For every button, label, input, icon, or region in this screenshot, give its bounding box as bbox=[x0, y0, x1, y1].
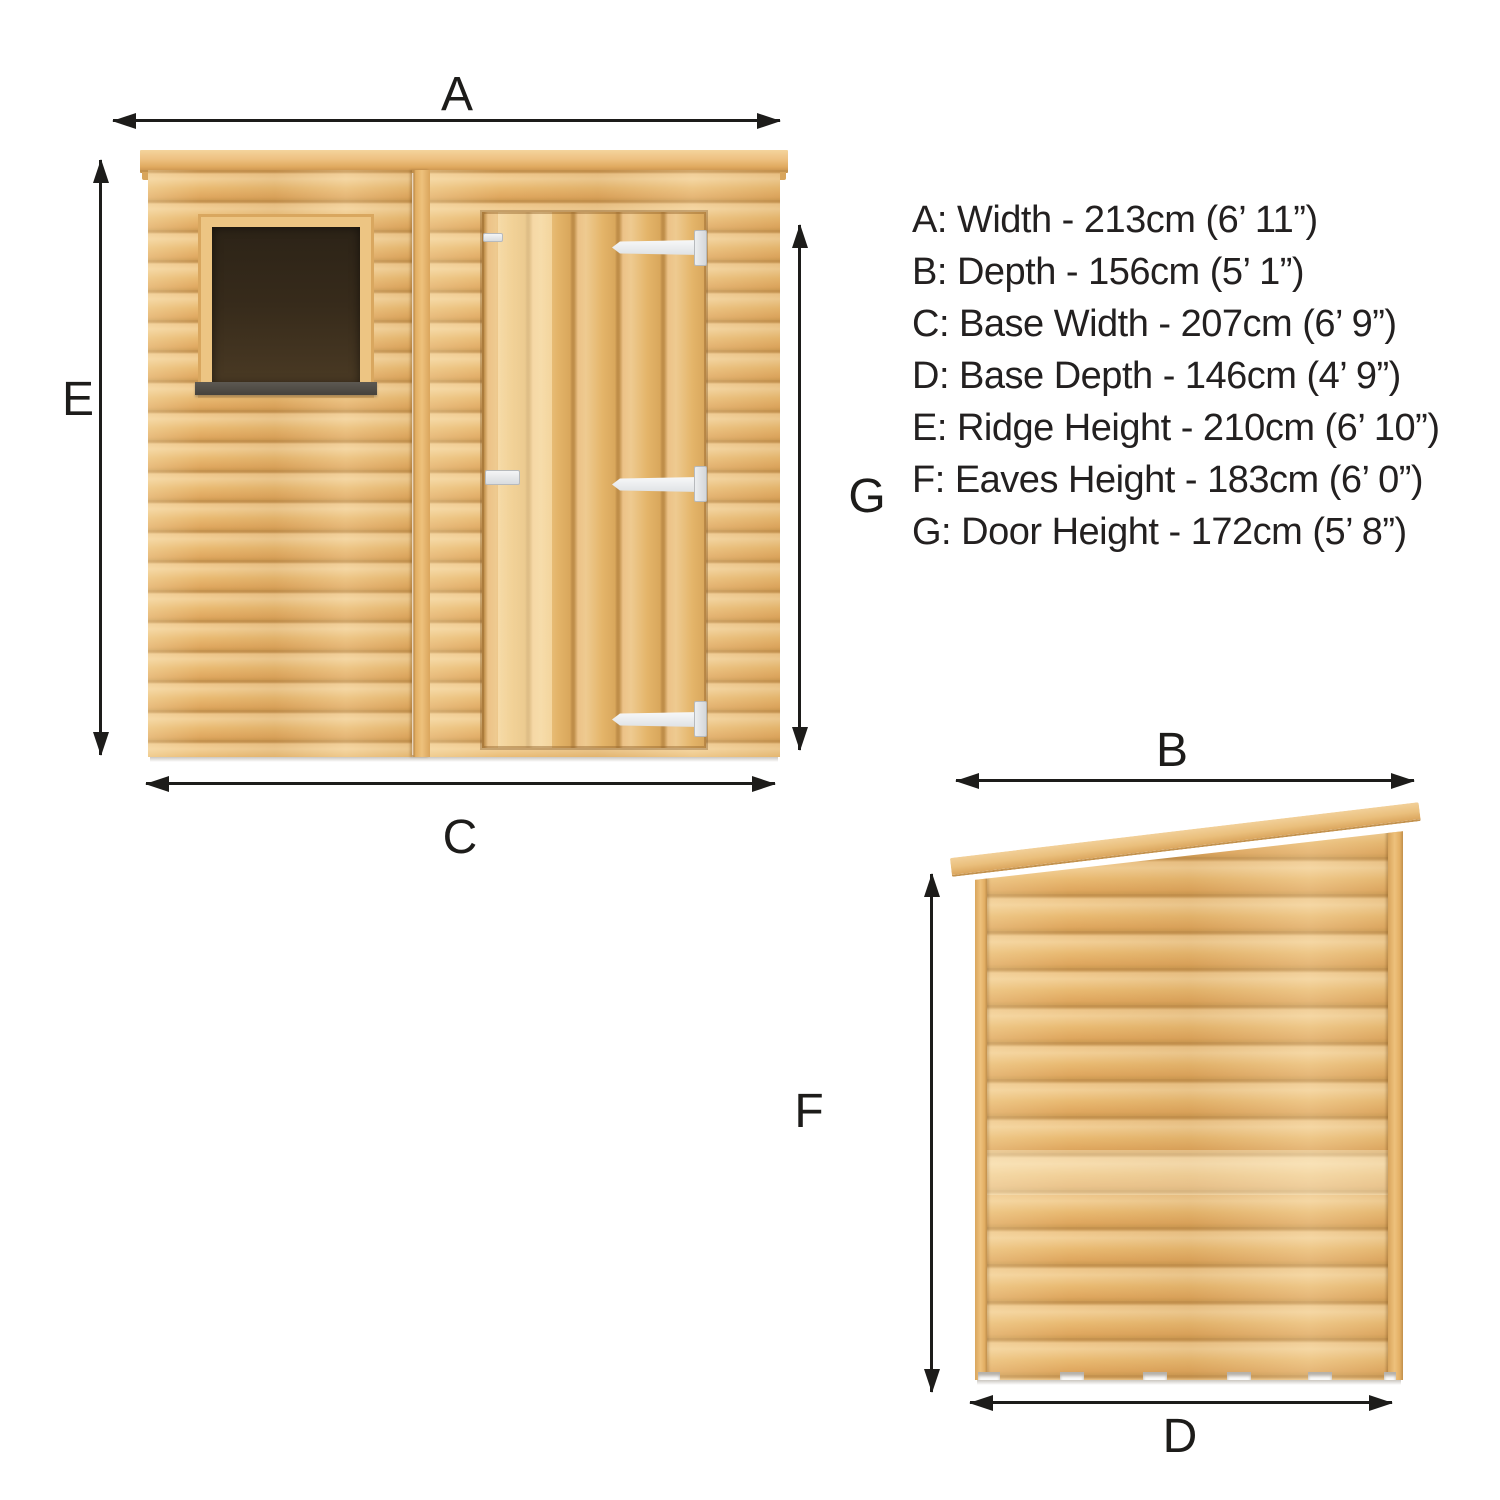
dim-label-d: D bbox=[1163, 1413, 1198, 1461]
legend-item-b: B: Depth - 156cm (5’ 1”) bbox=[912, 246, 1440, 298]
bearer-gap bbox=[1143, 1372, 1167, 1380]
dim-label-c: C bbox=[443, 814, 478, 862]
bearer-gap bbox=[1060, 1372, 1084, 1380]
side-wall bbox=[975, 820, 1403, 1380]
legend-item-a: A: Width - 213cm (6’ 11”) bbox=[912, 194, 1440, 246]
legend-item-e: E: Ridge Height - 210cm (6’ 10”) bbox=[912, 402, 1440, 454]
dim-label-e: E bbox=[62, 376, 94, 424]
bearer-gap bbox=[1227, 1372, 1251, 1380]
dim-label-f: F bbox=[794, 1088, 823, 1136]
side-shed-shadow bbox=[977, 1380, 1401, 1385]
dim-arrow-depth-b bbox=[956, 779, 1414, 782]
dim-arrow-door-g bbox=[798, 225, 801, 750]
dim-arrow-base-depth-d bbox=[970, 1401, 1392, 1404]
bearer-gap bbox=[1308, 1372, 1332, 1380]
dim-label-g: G bbox=[848, 473, 885, 521]
legend-item-d: D: Base Depth - 146cm (4’ 9”) bbox=[912, 350, 1440, 402]
bearer-gap bbox=[1384, 1372, 1396, 1380]
light-board bbox=[975, 1150, 1403, 1195]
legend-item-g: G: Door Height - 172cm (5’ 8”) bbox=[912, 506, 1440, 558]
dim-label-b: B bbox=[1156, 727, 1188, 775]
dim-arrow-base-width-c bbox=[146, 782, 775, 785]
bearer-gap bbox=[978, 1372, 1000, 1380]
dim-arrow-eaves-f bbox=[930, 874, 933, 1392]
legend-item-c: C: Base Width - 207cm (6’ 9”) bbox=[912, 298, 1440, 350]
legend-item-f: F: Eaves Height - 183cm (6’ 0”) bbox=[912, 454, 1440, 506]
side-corner-trim-right bbox=[1388, 820, 1403, 1380]
shed-dimensions-diagram: A E G C B F D A: Width - 213cm (6’ 11”) … bbox=[0, 0, 1500, 1500]
dim-label-a: A bbox=[441, 71, 473, 119]
dimensions-legend: A: Width - 213cm (6’ 11”) B: Depth - 156… bbox=[912, 194, 1440, 558]
dim-arrow-ridge-e bbox=[99, 160, 102, 755]
side-corner-trim-left bbox=[975, 820, 987, 1380]
